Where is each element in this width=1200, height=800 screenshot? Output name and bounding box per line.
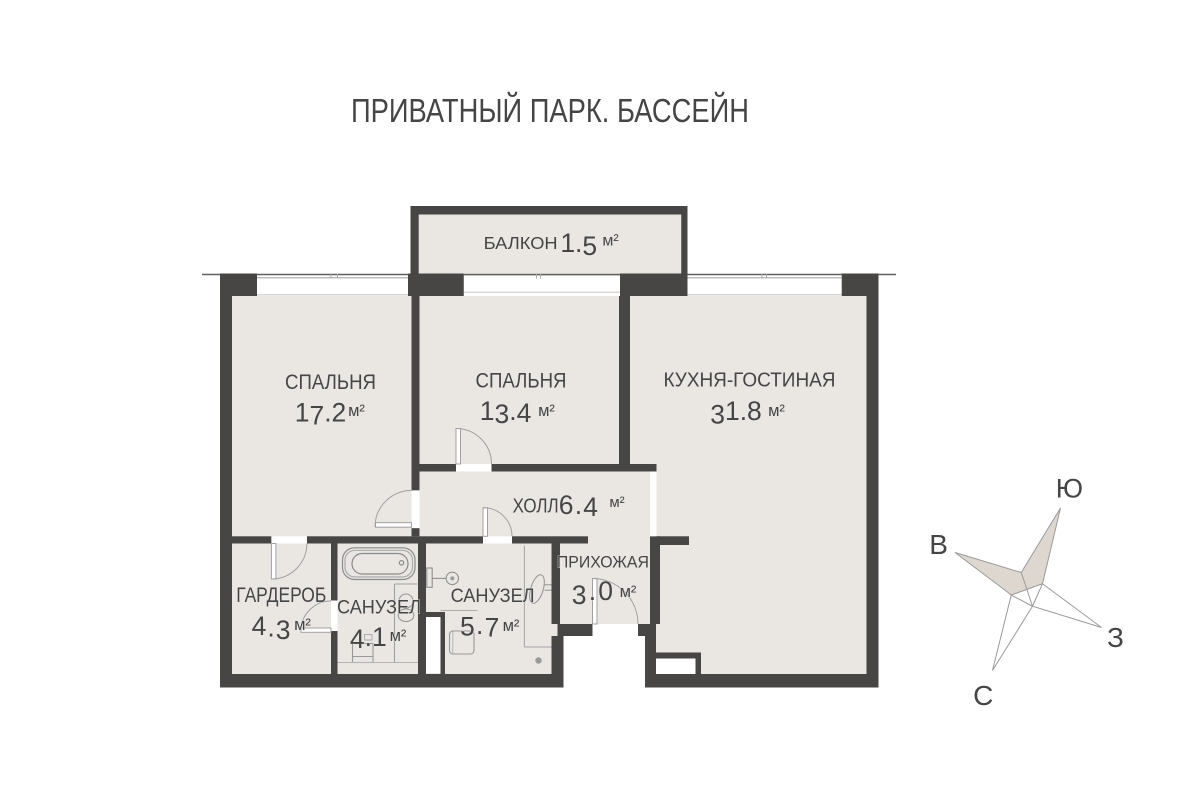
svg-text:м²: м² [538,402,555,420]
svg-text:Ю: Ю [1056,474,1083,504]
svg-text:м²: м² [294,616,311,634]
svg-text:5.7: 5.7 [460,610,500,643]
svg-text:1.5: 1.5 [560,228,597,261]
svg-text:м²: м² [609,494,624,511]
svg-text:З: З [1107,622,1124,653]
svg-text:4.3: 4.3 [252,611,292,645]
svg-text:17.2: 17.2 [295,398,347,431]
svg-text:4.1: 4.1 [350,622,387,654]
svg-text:м²: м² [602,233,619,250]
svg-text:ПРИВАТНЫЙ ПАРК. БАССЕЙН: ПРИВАТНЫЙ ПАРК. БАССЕЙН [351,92,749,129]
svg-text:м²: м² [503,617,520,635]
svg-text:САНУЗЕЛ: САНУЗЕЛ [337,597,421,619]
svg-text:ХОЛЛ: ХОЛЛ [513,495,559,518]
svg-text:СПАЛЬНЯ: СПАЛЬНЯ [285,370,376,394]
svg-text:3.0: 3.0 [572,576,615,610]
svg-text:6.4: 6.4 [559,490,599,522]
svg-text:м²: м² [620,583,637,601]
svg-text:БАЛКОН: БАЛКОН [484,233,558,253]
svg-text:13.4: 13.4 [480,396,532,429]
svg-text:ПРИХОЖАЯ: ПРИХОЖАЯ [557,553,649,572]
svg-text:СПАЛЬНЯ: СПАЛЬНЯ [476,369,567,393]
svg-text:ГАРДЕРОБ: ГАРДЕРОБ [236,583,326,607]
svg-text:м²: м² [390,627,407,645]
svg-text:В: В [929,529,948,560]
svg-text:м²: м² [768,402,785,420]
svg-text:С: С [973,680,993,711]
svg-text:м²: м² [348,402,365,420]
svg-text:КУХНЯ-ГОСТИНАЯ: КУХНЯ-ГОСТИНАЯ [664,370,836,392]
svg-text:31.8: 31.8 [710,396,762,430]
svg-text:САНУЗЕЛ: САНУЗЕЛ [451,585,535,607]
